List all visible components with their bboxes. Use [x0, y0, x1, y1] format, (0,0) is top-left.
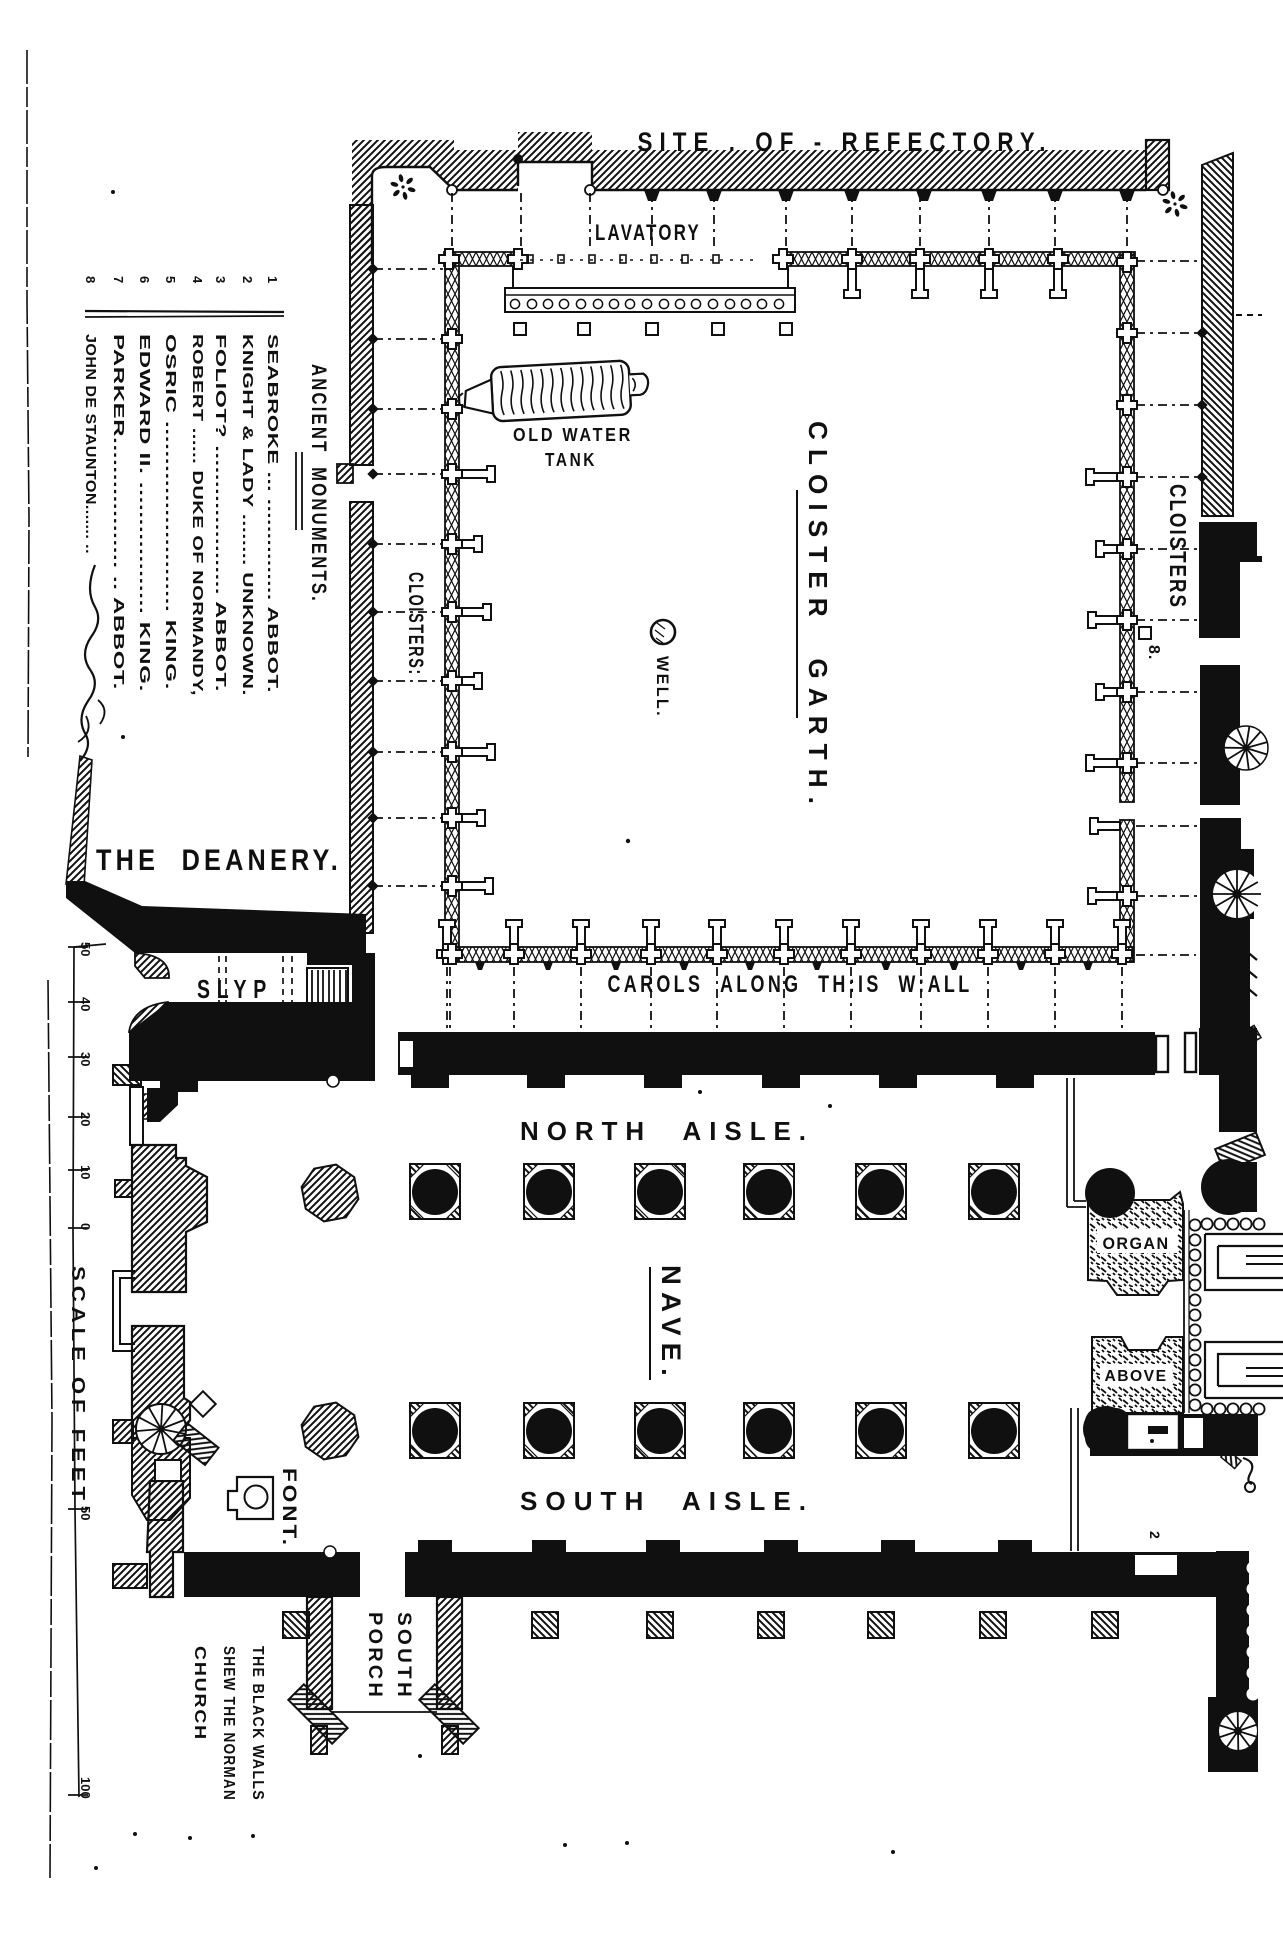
svg-text:KNIGHT & LADY ........ UNKNOWN: KNIGHT & LADY ........ UNKNOWN.	[239, 334, 255, 696]
svg-text:CLOISTERS: CLOISTERS	[1165, 484, 1191, 609]
svg-text:50: 50	[78, 942, 93, 956]
svg-text:ANCIENT MONUMENTS.: ANCIENT MONUMENTS.	[307, 364, 330, 603]
svg-text:EDWARD II. ..................: EDWARD II. .................. KING.	[136, 334, 152, 692]
svg-text:SOUTH: SOUTH	[393, 1612, 414, 1700]
svg-text:SHEW THE NORMAN: SHEW THE NORMAN	[220, 1646, 237, 1801]
svg-text:8: 8	[83, 276, 98, 283]
svg-text:SOUTH AISLE.: SOUTH AISLE.	[520, 1486, 814, 1516]
svg-text:100: 100	[78, 1777, 93, 1799]
svg-text:SLYP: SLYP	[197, 974, 273, 1004]
svg-text:TANK: TANK	[545, 450, 597, 470]
svg-text:WELL.: WELL.	[653, 656, 672, 718]
svg-text:PARKER.................. .. A: PARKER.................. .. ABBOT.	[110, 334, 126, 690]
svg-text:JOHN DE STAUNTON....... ..: JOHN DE STAUNTON....... ..	[82, 334, 98, 554]
svg-text:NAVE.: NAVE.	[656, 1265, 686, 1383]
svg-text:ROBERT ...... DUKE OF NORMANDY: ROBERT ...... DUKE OF NORMANDY,	[189, 334, 205, 696]
svg-text:30: 30	[78, 1052, 93, 1066]
svg-text:3: 3	[213, 276, 228, 283]
svg-text:2: 2	[1147, 1531, 1163, 1539]
svg-text:0: 0	[78, 1223, 93, 1230]
svg-text:OSRIC ........................: OSRIC .......................... KING.	[162, 334, 178, 690]
svg-text:20: 20	[78, 1112, 93, 1126]
svg-text:2: 2	[240, 276, 255, 283]
svg-text:FONT.: FONT.	[278, 1468, 299, 1548]
svg-text:7: 7	[111, 276, 126, 283]
svg-text:CHURCH: CHURCH	[191, 1646, 208, 1741]
svg-text:FOLIOT? .....................: FOLIOT? ..................... ABBOT.	[212, 334, 228, 692]
svg-text:40: 40	[78, 997, 93, 1011]
svg-text:5: 5	[163, 276, 178, 283]
svg-text:6: 6	[137, 276, 152, 283]
svg-text:THE DEANERY.: THE DEANERY.	[96, 844, 342, 877]
svg-text:SEABROKE ... ............... A: SEABROKE ... ............... ABBOT.	[264, 334, 280, 693]
svg-text:NORTH AISLE.: NORTH AISLE.	[520, 1116, 814, 1146]
svg-text:PORCH: PORCH	[364, 1612, 385, 1700]
svg-text:THE BLACK WALLS: THE BLACK WALLS	[249, 1646, 266, 1801]
svg-text:LAVATORY: LAVATORY	[595, 220, 701, 245]
svg-text:CLOISTER GARTH.: CLOISTER GARTH.	[803, 421, 833, 813]
svg-text:CLOISTERS:: CLOISTERS:	[404, 572, 427, 676]
svg-text:4: 4	[190, 276, 205, 284]
svg-text:1: 1	[265, 276, 280, 283]
svg-text:10: 10	[78, 1165, 93, 1179]
svg-text:OLD WATER: OLD WATER	[513, 425, 633, 445]
svg-text:CAROLS ALONG TH:IS W:ALL: CAROLS ALONG TH:IS W:ALL	[608, 971, 973, 998]
svg-text:ABOVE: ABOVE	[1105, 1368, 1168, 1385]
svg-text:8.: 8.	[1145, 645, 1162, 660]
svg-text:50: 50	[78, 1506, 93, 1520]
svg-text:ORGAN: ORGAN	[1103, 1234, 1170, 1253]
svg-text:SCALE OF FEET: SCALE OF FEET	[68, 1266, 88, 1505]
